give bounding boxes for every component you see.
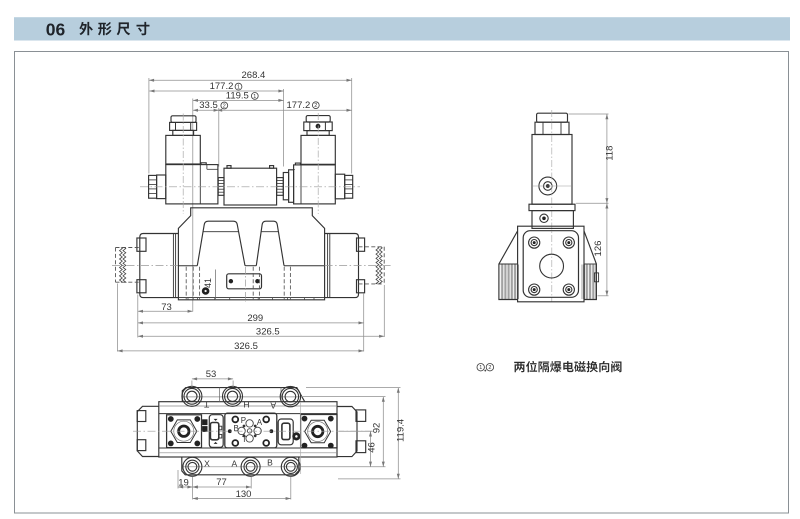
svg-text:A: A (257, 418, 263, 427)
svg-text:118: 118 (604, 146, 615, 161)
svg-text:53: 53 (206, 369, 217, 380)
svg-text:06: 06 (46, 19, 66, 39)
svg-text:268.4: 268.4 (242, 70, 266, 81)
svg-text:1: 1 (253, 94, 256, 100)
svg-text:1: 1 (237, 85, 240, 91)
svg-text:T: T (242, 435, 247, 444)
svg-text:2: 2 (314, 103, 317, 109)
svg-text:2: 2 (223, 103, 226, 109)
svg-text:A: A (231, 458, 237, 468)
svg-text:92: 92 (372, 423, 383, 434)
svg-text:B: B (267, 457, 273, 467)
svg-text:X: X (204, 458, 210, 468)
svg-text:P: P (241, 416, 246, 425)
svg-text:1: 1 (479, 365, 482, 371)
svg-text:126: 126 (593, 241, 604, 257)
svg-text:A: A (270, 401, 276, 411)
svg-text:119.4: 119.4 (396, 419, 407, 442)
svg-text:T: T (204, 400, 209, 410)
svg-text:46: 46 (367, 442, 378, 453)
svg-text:177.2: 177.2 (287, 100, 311, 111)
svg-text:77: 77 (216, 477, 227, 488)
svg-text:2: 2 (488, 365, 491, 371)
svg-text:119.5: 119.5 (226, 91, 249, 102)
svg-text:H: H (243, 400, 249, 410)
svg-text:41: 41 (203, 278, 213, 288)
